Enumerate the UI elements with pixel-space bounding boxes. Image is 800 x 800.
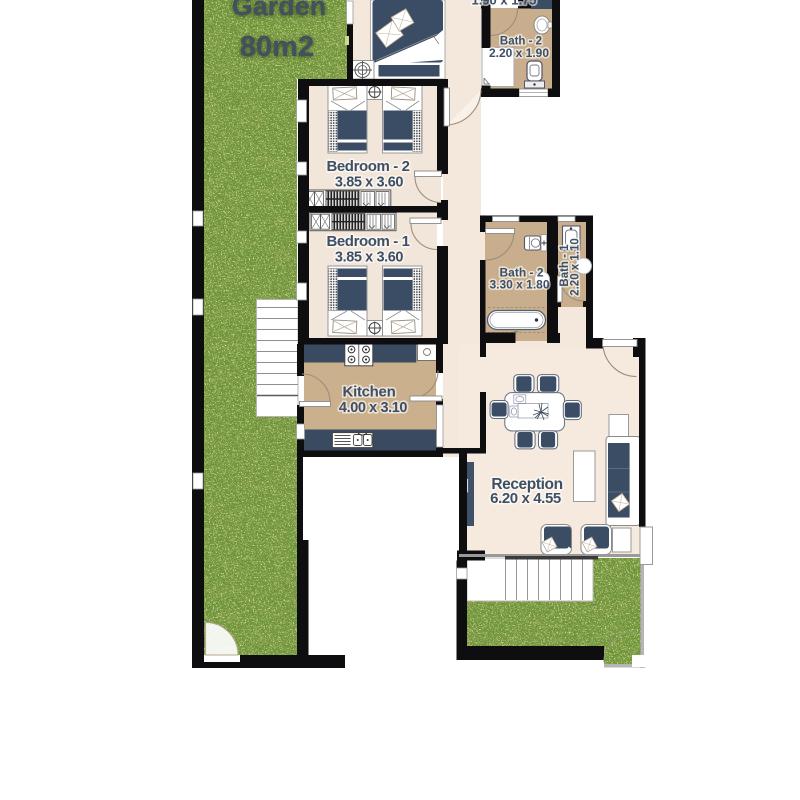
svg-text:Bedroom - 2: Bedroom - 2	[326, 158, 409, 175]
svg-text:Garden: Garden	[232, 0, 327, 21]
svg-text:6.20 x 4.55: 6.20 x 4.55	[490, 490, 561, 507]
svg-text:Bedroom - 1: Bedroom - 1	[326, 233, 409, 250]
svg-text:3.85 x 3.60: 3.85 x 3.60	[335, 250, 403, 266]
svg-text:Kitchen: Kitchen	[343, 384, 396, 401]
svg-text:3.30 x 1.80: 3.30 x 1.80	[489, 278, 549, 292]
svg-text:1.90 x 1.75: 1.90 x 1.75	[471, 0, 536, 8]
svg-text:2.20 x 1.10: 2.20 x 1.10	[570, 238, 582, 296]
svg-text:3.85 x 3.60: 3.85 x 3.60	[335, 175, 403, 191]
svg-text:4.00 x 3.10: 4.00 x 3.10	[339, 400, 407, 416]
svg-text:2.20 x 1.90: 2.20 x 1.90	[489, 46, 549, 60]
svg-text:80m2: 80m2	[240, 31, 314, 63]
